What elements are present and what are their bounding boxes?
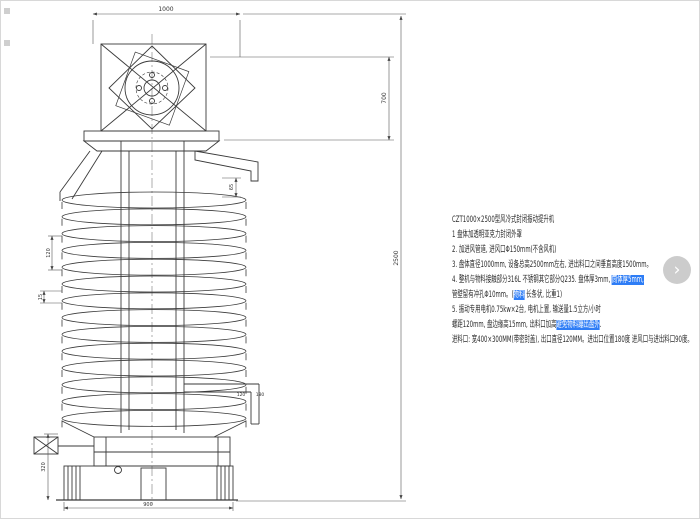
note-line: 3. 盘体直径1000mm, 设备总高2500mm左右, 进出料口之间垂直高度1… — [452, 258, 600, 273]
dim-tray-edge: 15 — [38, 294, 44, 300]
note-line: 5. 振动专用电机0.75kw×2台, 电机上置, 输送量1.5立方/小时 — [452, 303, 600, 318]
note-text: 5. 振动专用电机0.75kw×2台, 电机上置, 输送量1.5立方/小时 — [452, 305, 601, 315]
note-text: 进料口: 宽400×300MM(带密封盖), 出口直径120MM。进出口位置18… — [452, 335, 693, 345]
note-text: 螺距120mm, 盘边缘高15mm, 出料口加高 — [452, 320, 556, 330]
dim-base-height: 320 — [41, 462, 47, 472]
spiral-tray — [62, 276, 246, 292]
upper-discharge-spout — [195, 151, 258, 181]
dim-pitch: 120 — [46, 248, 52, 258]
note-text: 2. 加进风管道, 进风口Φ150mm(不含风机) — [452, 245, 556, 255]
spec-notes: CZT1000×2500型风冷式封闭振动提升机 1 盘体加透明亚克力封闭外罩2.… — [452, 213, 698, 363]
note-text: 长条状, 比重1) — [524, 290, 562, 300]
spec-title: CZT1000×2500型风冷式封闭振动提升机 — [452, 213, 600, 228]
spiral-tray — [62, 360, 246, 376]
note-text: 管壁留有冲孔Φ10mm。( — [452, 290, 514, 300]
dimension-labels: 1000 2500 700 65 120 15 320 900 120 180 — [38, 6, 400, 508]
note-line: 螺距120mm, 盘边缘高15mm, 出料口加高避免物料蹦出盘外. — [452, 318, 600, 333]
note-text: 3. 盘体直径1000mm, 设备总高2500mm左右, 进出料口之间垂直高度1… — [452, 260, 652, 270]
top-cover — [84, 131, 219, 151]
spiral-tray — [62, 226, 246, 242]
chevron-right-icon: › — [674, 262, 681, 279]
note-line: 1 盘体加透明亚克力封闭外罩 — [452, 228, 600, 243]
dim-top-width: 1000 — [158, 6, 173, 13]
dim-base-width: 900 — [143, 502, 153, 508]
note-line: 2. 加进风管道, 进风口Φ150mm(不含风机) — [452, 243, 600, 258]
central-column — [121, 141, 184, 433]
highlighted-text: 避免物料蹦出盘外 — [556, 320, 599, 330]
spiral-tray — [62, 326, 246, 342]
spiral-tray — [62, 310, 246, 326]
note-text: 4. 整机与物料接触部分316L 不锈钢其它部分Q235. 盘体厚3mm, — [452, 275, 612, 285]
dim-discharge-1: 120 — [237, 392, 246, 398]
note-line: 进料口: 宽400×300MM(带密封盖), 出口直径120MM。进出口位置18… — [452, 333, 600, 348]
dim-overall-height: 2500 — [393, 250, 400, 265]
dim-spout-drop: 65 — [229, 184, 235, 190]
next-arrow-button[interactable]: › — [663, 256, 691, 284]
spiral-tray — [62, 209, 246, 225]
spiral-tray — [62, 192, 246, 208]
highlighted-text: 筒体厚5mm, — [612, 275, 644, 285]
spiral-tray — [62, 410, 246, 426]
motor-assembly — [101, 44, 206, 131]
dim-upper-height: 700 — [381, 92, 388, 104]
spiral-tray — [62, 242, 246, 258]
spiral-tray — [62, 259, 246, 275]
note-line: 管壁留有冲孔Φ10mm。(物料 长条状, 比重1) — [452, 288, 600, 303]
spiral-tray — [62, 394, 246, 410]
spiral-tray — [62, 293, 246, 309]
dim-discharge-2: 180 — [256, 392, 265, 398]
spiral-tray — [62, 343, 246, 359]
note-line: 4. 整机与物料接触部分316L 不锈钢其它部分Q235. 盘体厚3mm, 筒体… — [452, 273, 600, 288]
note-text: . — [600, 320, 602, 330]
dimension-lines — [40, 14, 406, 511]
base-assembly — [34, 421, 246, 500]
note-text: 1 盘体加透明亚克力封闭外罩 — [452, 230, 522, 240]
spiral-tray — [62, 377, 246, 393]
notes-lines: 1 盘体加透明亚克力封闭外罩2. 加进风管道, 进风口Φ150mm(不含风机)3… — [452, 228, 698, 348]
highlighted-text: 物料 — [514, 290, 525, 300]
